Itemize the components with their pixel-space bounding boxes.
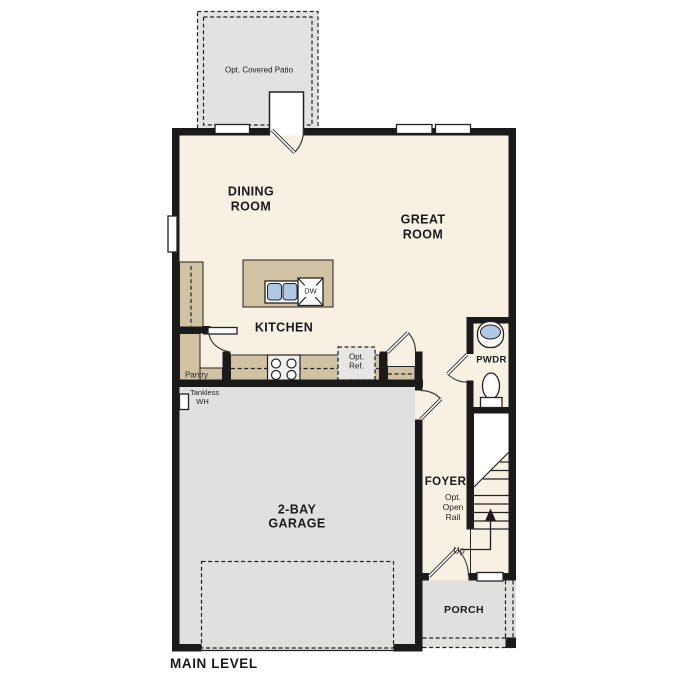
dishwasher-label: DW — [304, 287, 317, 296]
powder-sink-icon — [478, 322, 504, 348]
room-label-pantry: Pantry — [185, 370, 208, 379]
room-label-porch: PORCH — [444, 604, 484, 616]
up-label: Up — [453, 546, 465, 557]
range-icon — [268, 355, 301, 382]
room-label-patio: Opt. Covered Patio — [225, 65, 293, 74]
open-rail-label: Opt. Open Rail — [443, 492, 464, 522]
room-label-pwdr: PWDR — [476, 354, 507, 365]
room-label-garage: 2-BAY GARAGE — [268, 502, 325, 532]
level-title: MAIN LEVEL — [170, 656, 258, 672]
patio-door-recess — [270, 92, 304, 136]
room-label-kitchen: KITCHEN — [255, 321, 313, 336]
floor-plan: Opt. Covered Patio DINING ROOM GREAT ROO… — [0, 0, 687, 687]
tankless-water-heater-icon — [180, 394, 189, 410]
floor-plan-drawing — [0, 0, 687, 687]
island-sink-icon — [265, 281, 299, 303]
room-label-great: GREAT ROOM — [401, 212, 446, 242]
opt-ref-label: Opt. Ref. — [349, 352, 364, 371]
tankless-wh-label: Tankless WH — [190, 389, 219, 407]
room-label-foyer: FOYER — [425, 476, 467, 490]
room-label-dining: DINING ROOM — [228, 184, 274, 214]
